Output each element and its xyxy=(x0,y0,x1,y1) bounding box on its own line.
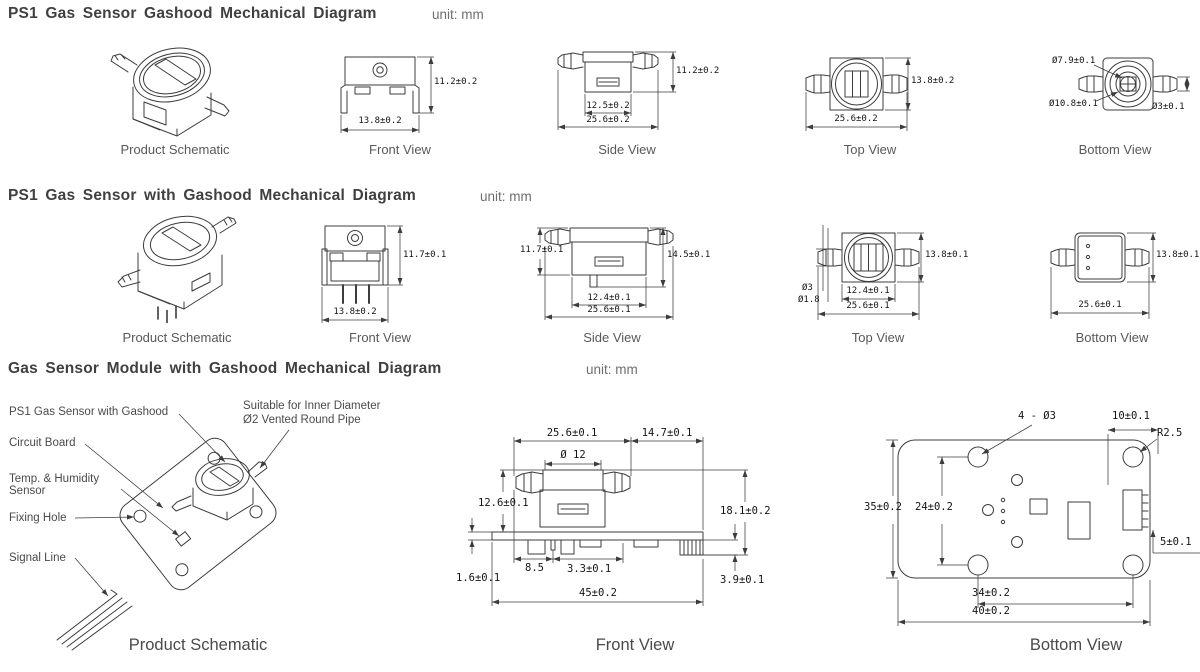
s1-bottom-view: Ø7.9±0.1 Ø10.8±0.1 Ø3±0.1 Bottom View xyxy=(1030,45,1200,160)
view-caption: Front View xyxy=(369,142,431,157)
section3-title: Gas Sensor Module with Gashood Mechanica… xyxy=(8,360,441,378)
label-sensor: PS1 Gas Sensor with Gashood xyxy=(9,406,168,419)
dim-s3-bottom-height: 35±0.2 xyxy=(864,502,902,513)
s1-top-view-drawing xyxy=(785,45,950,140)
dim-s2-bottom-width: 25.6±0.1 xyxy=(1078,301,1121,310)
dim-s2-side-height: 11.7±0.1 xyxy=(520,246,563,255)
s1-top-view: 13.8±0.2 25.6±0.2 Top View xyxy=(785,45,950,160)
s2-bottom-view: 13.8±0.1 25.6±0.1 Bottom View xyxy=(1032,213,1192,348)
dim-s3-bottom-connector-offset: 5±0.1 xyxy=(1160,537,1192,548)
s3-product-schematic-view: PS1 Gas Sensor with Gashood Suitable for… xyxy=(5,392,385,672)
dim-s3-bottom-holes: 4 - Ø3 xyxy=(1018,411,1056,422)
dim-s3-bottom-corner-radius: R2.5 xyxy=(1157,428,1182,439)
s2-front-view-drawing xyxy=(300,213,460,327)
view-caption: Bottom View xyxy=(1030,636,1122,655)
dim-s3-bottom-hole-pitch-v: 24±0.2 xyxy=(915,502,953,513)
dim-s3-front-total-height: 18.1±0.2 xyxy=(720,506,771,517)
s3-front-view: 25.6±0.1 14.7±0.1 Ø 12 12.6±0.1 18.1±0.2… xyxy=(440,392,840,672)
view-caption: Top View xyxy=(852,330,905,345)
view-caption: Product Schematic xyxy=(122,330,231,345)
view-caption: Side View xyxy=(598,142,656,157)
dim-s3-front-connector-drop: 3.9±0.1 xyxy=(720,575,764,586)
dim-s3-bottom-width: 40±0.2 xyxy=(972,606,1010,617)
dim-s1-side-height: 11.2±0.2 xyxy=(676,67,719,76)
s1-side-view: 11.2±0.2 12.5±0.2 25.6±0.2 Side View xyxy=(545,45,710,160)
dim-s2-front-width: 13.8±0.2 xyxy=(333,308,376,317)
dim-s3-front-right-span: 14.7±0.1 xyxy=(642,428,693,439)
dim-s3-front-sensor-height: 12.6±0.1 xyxy=(478,498,529,509)
s2-front-view: 11.7±0.1 13.8±0.2 Front View xyxy=(300,213,460,348)
page: { "sections": [ { "title": "PS1 Gas Sens… xyxy=(0,0,1200,672)
view-caption: Product Schematic xyxy=(120,142,229,157)
dim-s2-side-width: 25.6±0.1 xyxy=(587,306,630,315)
section3-unit: unit: mm xyxy=(586,362,638,377)
label-circuit-board: Circuit Board xyxy=(9,437,75,450)
s1-side-view-drawing xyxy=(545,45,710,140)
section2-unit: unit: mm xyxy=(480,189,532,204)
label-signal-line: Signal Line xyxy=(9,552,66,565)
view-caption: Top View xyxy=(844,142,897,157)
view-caption: Side View xyxy=(583,330,641,345)
view-caption: Product Schematic xyxy=(129,636,267,655)
view-caption: Bottom View xyxy=(1079,142,1152,157)
s1-product-schematic-view: Product Schematic xyxy=(100,45,250,160)
section2-title: PS1 Gas Sensor with Gashood Mechanical D… xyxy=(8,187,416,205)
s3-bottom-view: 4 - Ø3 10±0.1 R2.5 35±0.2 24±0.2 5±0.1 3… xyxy=(860,392,1200,672)
view-caption: Front View xyxy=(596,636,675,655)
section1-title: PS1 Gas Sensor Gashood Mechanical Diagra… xyxy=(8,5,377,23)
s2-side-view: 11.7±0.1 14.5±0.1 12.4±0.1 25.6±0.1 Side… xyxy=(520,213,705,348)
s3-bottom-view-drawing xyxy=(860,392,1200,636)
dim-s2-side-total-height: 14.5±0.1 xyxy=(667,251,710,260)
dim-s1-side-width: 25.6±0.2 xyxy=(586,116,629,125)
dim-s1-top-height: 13.8±0.2 xyxy=(911,77,954,86)
dim-s3-front-pin-offset: 8.5 xyxy=(525,563,544,574)
s2-product-schematic-view: Product Schematic xyxy=(102,213,252,348)
s1-product-schematic-drawing xyxy=(100,45,250,140)
dim-s2-front-height: 11.7±0.1 xyxy=(403,251,446,260)
dim-s3-front-board-thickness: 1.6±0.1 xyxy=(456,573,500,584)
label-pipe-line2: Ø2 Vented Round Pipe xyxy=(243,414,361,427)
dim-s1-front-height: 11.2±0.2 xyxy=(434,78,477,87)
view-caption: Front View xyxy=(349,330,411,345)
dim-s3-front-hood-dia: Ø 12 xyxy=(560,450,585,461)
dim-s3-bottom-right-span: 10±0.1 xyxy=(1112,411,1150,422)
view-caption: Bottom View xyxy=(1076,330,1149,345)
dim-s2-top-nozzle-id: Ø1.8 xyxy=(798,296,820,305)
dim-s1-bottom-inner-dia: Ø7.9±0.1 xyxy=(1052,57,1095,66)
label-fixing-hole: Fixing Hole xyxy=(9,512,67,525)
dim-s2-top-inner-width: 12.4±0.1 xyxy=(846,287,889,296)
dim-s1-top-width: 25.6±0.2 xyxy=(834,115,877,124)
dim-s1-bottom-outer-dia: Ø10.8±0.1 xyxy=(1049,100,1098,109)
s3-front-view-drawing xyxy=(440,392,840,636)
dim-s3-front-total-width: 45±0.2 xyxy=(579,588,617,599)
dim-s2-top-width: 25.6±0.1 xyxy=(846,302,889,311)
label-pipe-line1: Suitable for Inner Diameter xyxy=(243,400,380,413)
dim-s1-side-inner-width: 12.5±0.2 xyxy=(586,102,629,111)
s2-product-schematic-drawing xyxy=(102,213,252,327)
dim-s2-side-inner-width: 12.4±0.1 xyxy=(587,294,630,303)
dim-s1-bottom-nozzle-dia: Ø3±0.1 xyxy=(1152,103,1185,112)
section1-unit: unit: mm xyxy=(432,7,484,22)
s2-top-view: 13.8±0.1 12.4±0.1 25.6±0.1 Ø3 Ø1.8 Top V… xyxy=(788,213,968,348)
dim-s3-front-sensor-width: 25.6±0.1 xyxy=(547,428,598,439)
dim-s3-front-pin-pitch: 3.3±0.1 xyxy=(567,564,611,575)
dim-s1-front-width: 13.8±0.2 xyxy=(358,117,401,126)
dim-s2-top-height: 13.8±0.1 xyxy=(925,251,968,260)
dim-s3-bottom-hole-pitch-h: 34±0.2 xyxy=(972,588,1010,599)
dim-s2-top-nozzle-od: Ø3 xyxy=(802,284,813,293)
s1-front-view: 11.2±0.2 13.8±0.2 Front View xyxy=(330,45,470,160)
dim-s2-bottom-height: 13.8±0.1 xyxy=(1156,251,1199,260)
label-temp-line2: Sensor xyxy=(9,485,45,498)
